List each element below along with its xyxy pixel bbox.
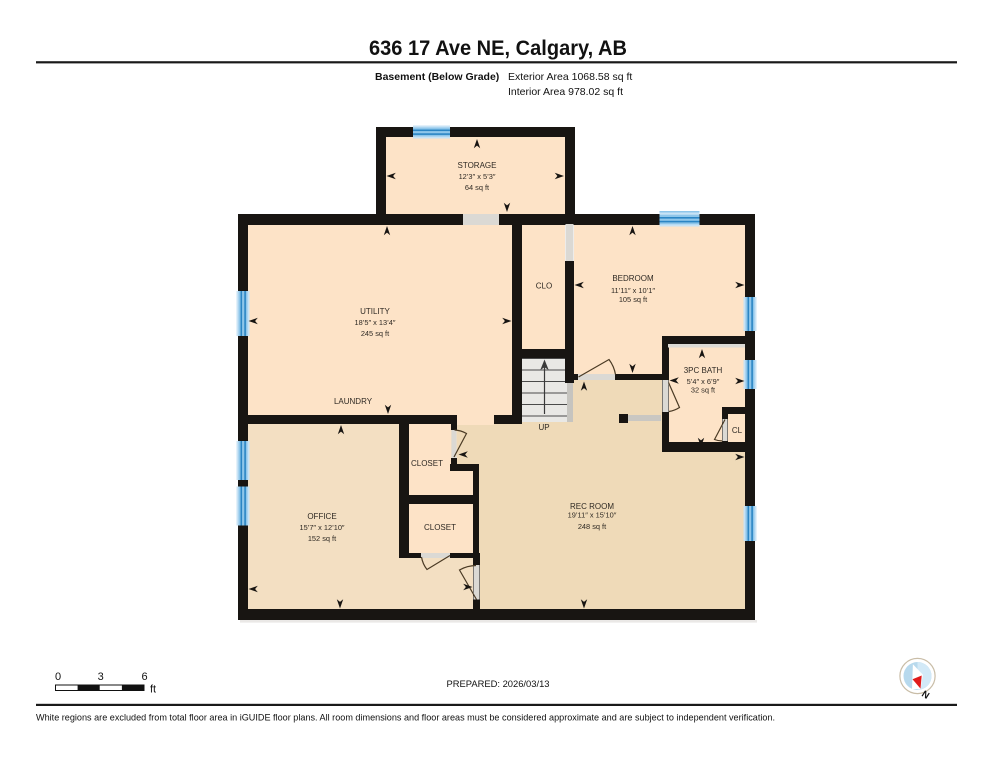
svg-text:12’3″ x 5’3″: 12’3″ x 5’3″ (459, 172, 496, 181)
svg-text:32 sq ft: 32 sq ft (691, 386, 715, 395)
svg-text:CL: CL (732, 426, 743, 435)
svg-text:UP: UP (538, 423, 549, 432)
svg-text:105 sq ft: 105 sq ft (619, 295, 647, 304)
svg-text:18’5″ x 13’4″: 18’5″ x 13’4″ (355, 318, 396, 327)
svg-text:19’11″ x 15’10″: 19’11″ x 15’10″ (568, 511, 617, 520)
svg-text:3PC BATH: 3PC BATH (684, 366, 723, 375)
svg-text:64 sq ft: 64 sq ft (465, 183, 489, 192)
svg-text:636 17 Ave NE, Calgary, AB: 636 17 Ave NE, Calgary, AB (369, 36, 627, 60)
svg-text:BEDROOM: BEDROOM (612, 274, 654, 283)
svg-text:CLOSET: CLOSET (411, 459, 443, 468)
svg-text:LAUNDRY: LAUNDRY (334, 397, 373, 406)
svg-text:UTILITY: UTILITY (360, 307, 390, 316)
svg-text:Exterior Area 1068.58 sq ft: Exterior Area 1068.58 sq ft (508, 71, 632, 83)
svg-text:STORAGE: STORAGE (458, 161, 497, 170)
svg-text:Basement (Below Grade): Basement (Below Grade) (375, 71, 499, 83)
svg-text:248 sq ft: 248 sq ft (578, 522, 606, 531)
svg-text:6: 6 (141, 671, 147, 683)
svg-text:CLO: CLO (536, 282, 552, 291)
svg-text:CLOSET: CLOSET (424, 523, 456, 532)
svg-text:152 sq ft: 152 sq ft (308, 534, 336, 543)
svg-text:Interior Area 978.02 sq ft: Interior Area 978.02 sq ft (508, 86, 623, 98)
svg-text:White regions are excluded fro: White regions are excluded from total fl… (36, 713, 775, 723)
svg-text:3: 3 (98, 671, 104, 683)
svg-text:PREPARED: 2026/03/13: PREPARED: 2026/03/13 (446, 678, 549, 689)
svg-text:245 sq ft: 245 sq ft (361, 329, 389, 338)
svg-text:0: 0 (55, 671, 61, 683)
svg-text:11’11″ x 10’1″: 11’11″ x 10’1″ (611, 286, 655, 295)
svg-text:OFFICE: OFFICE (307, 512, 336, 521)
svg-text:ft: ft (150, 684, 156, 696)
svg-text:15’7″ x 12’10″: 15’7″ x 12’10″ (299, 523, 344, 532)
